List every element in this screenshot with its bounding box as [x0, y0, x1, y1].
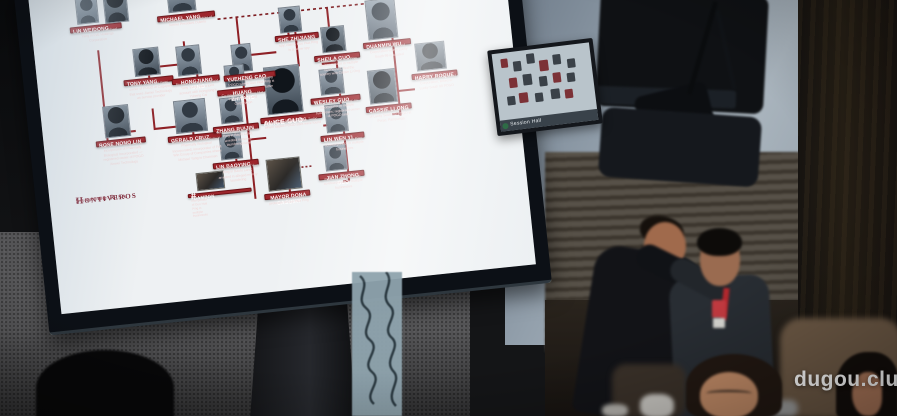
- white-cup: [640, 394, 674, 416]
- mini-chart-block: [552, 72, 561, 83]
- mini-caption-text: Session Hall: [510, 118, 542, 128]
- mini-org-chart: [492, 42, 597, 120]
- eyeglasses: [706, 390, 752, 397]
- org-chart: Senator Risa Hontiveros Senate of the Ph…: [28, 0, 536, 314]
- metal-railing: [352, 272, 402, 416]
- cassie-li-ong-photo: [367, 68, 398, 105]
- sheila-guo-photo: [320, 25, 347, 53]
- presentation-monitor: Senator Risa Hontiveros Senate of the Ph…: [13, 0, 552, 335]
- mini-chart-block: [500, 58, 508, 68]
- mini-chart-block: [519, 92, 529, 103]
- mini-chart-block: [567, 58, 576, 68]
- mini-chart-block: [507, 96, 516, 106]
- she-zhijiang-photo: [278, 6, 303, 34]
- rose-nono-lin-photo: [102, 104, 131, 139]
- mini-chart-block: [550, 88, 560, 99]
- photo-horned-figure: [102, 0, 129, 24]
- watermark: dugou.club: [794, 368, 897, 392]
- mini-chart-block: [539, 76, 548, 87]
- node-desc: Co-incorporator of Guo Hua Ping in multi…: [191, 194, 209, 219]
- tony-yang-photo: [132, 47, 161, 78]
- mini-chart-block: [509, 77, 518, 88]
- man-in-barong-hair: [697, 228, 742, 256]
- senate-logo-icon: [502, 123, 509, 130]
- equipment-base: [598, 107, 762, 188]
- mini-chart-block: [535, 92, 544, 102]
- mini-chart-block: [526, 53, 535, 64]
- gerald-cruz-photo: [173, 98, 208, 134]
- red-id-badge: [712, 300, 726, 318]
- harry-roque-photo: [414, 41, 447, 72]
- railing-scrollwork: [352, 272, 402, 416]
- mini-chart-block: [522, 74, 532, 86]
- id-card: [713, 318, 725, 328]
- audience-head-silhouette: [36, 350, 174, 416]
- duanmin-wu-photo: [364, 0, 398, 40]
- mini-chart-block: [552, 54, 561, 65]
- white-cup: [602, 404, 628, 416]
- mayor-dona-caguiay-photo: [266, 156, 303, 191]
- mini-chart-block: [539, 59, 549, 71]
- preview-monitor: Session Hall: [487, 38, 603, 136]
- mini-chart-block: [513, 61, 522, 72]
- mini-chart-block: [566, 72, 575, 82]
- hongjiang-yang-photo: [175, 44, 202, 76]
- mini-chart-block: [564, 89, 573, 99]
- monitor-screen: Senator Risa Hontiveros Senate of the Ph…: [28, 0, 536, 314]
- senate-hearing-photo: Senator Risa Hontiveros Senate of the Ph…: [0, 0, 897, 416]
- lin-weidong-photo: [74, 0, 99, 25]
